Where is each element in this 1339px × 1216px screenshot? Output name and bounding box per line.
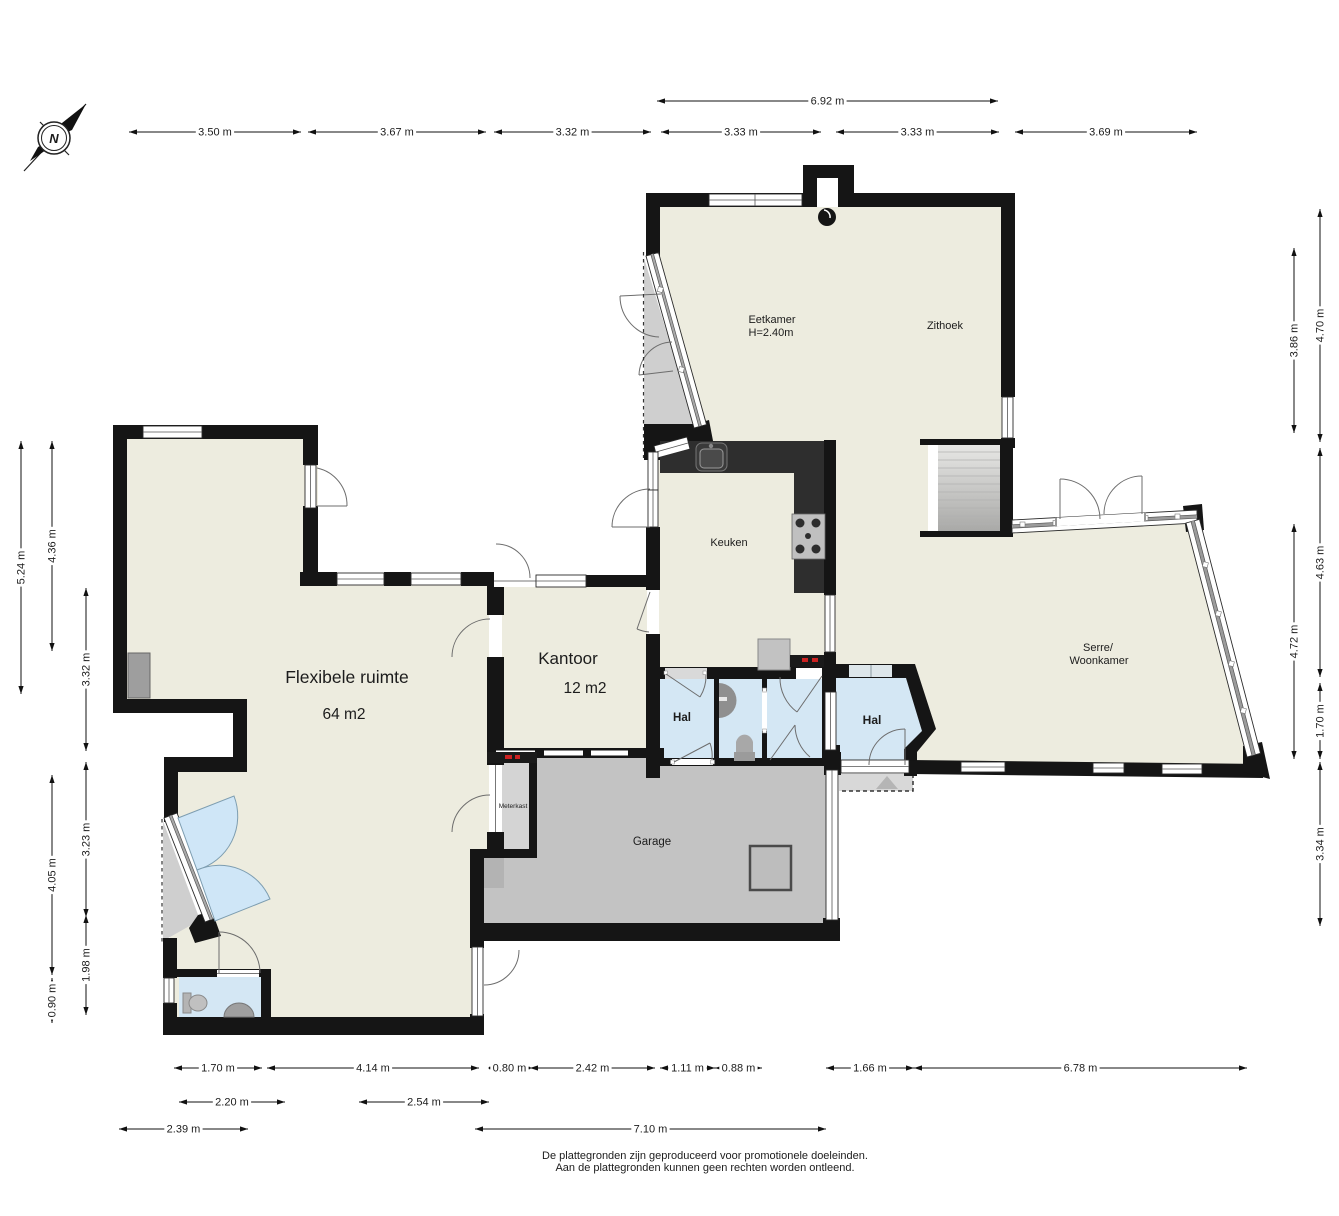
svg-text:Hal: Hal [863, 713, 882, 727]
svg-text:6.92 m: 6.92 m [811, 96, 845, 108]
svg-text:H=2.40m: H=2.40m [749, 327, 794, 339]
svg-text:1.11 m: 1.11 m [671, 1063, 704, 1075]
svg-text:64 m2: 64 m2 [322, 706, 365, 723]
svg-text:Hal: Hal [673, 712, 691, 724]
svg-text:3.33 m: 3.33 m [724, 127, 758, 139]
svg-text:N: N [49, 131, 59, 146]
svg-text:Meterkast: Meterkast [499, 803, 528, 810]
svg-text:2.42 m: 2.42 m [576, 1063, 610, 1075]
svg-text:4.63 m: 4.63 m [1315, 546, 1327, 580]
svg-text:Kantoor: Kantoor [538, 649, 598, 668]
svg-text:4.36 m: 4.36 m [47, 529, 59, 563]
svg-text:0.90 m: 0.90 m [47, 984, 59, 1018]
svg-text:4.14 m: 4.14 m [356, 1063, 390, 1075]
svg-text:1.98 m: 1.98 m [81, 948, 93, 982]
svg-text:Eetkamer: Eetkamer [748, 314, 795, 326]
svg-text:Woonkamer: Woonkamer [1069, 655, 1128, 667]
svg-text:2.20 m: 2.20 m [215, 1097, 249, 1109]
svg-text:1.70 m: 1.70 m [1315, 704, 1327, 738]
svg-text:3.32 m: 3.32 m [556, 127, 590, 139]
svg-text:3.34 m: 3.34 m [1315, 827, 1327, 861]
svg-text:Aan de plattegronden kunnen ge: Aan de plattegronden kunnen geen rechten… [555, 1162, 854, 1174]
svg-text:2.39 m: 2.39 m [167, 1124, 201, 1136]
svg-text:0.88 m: 0.88 m [722, 1063, 756, 1075]
svg-text:3.32 m: 3.32 m [81, 653, 93, 687]
svg-text:3.33 m: 3.33 m [901, 127, 935, 139]
svg-text:3.86 m: 3.86 m [1289, 324, 1301, 358]
svg-text:12 m2: 12 m2 [563, 680, 606, 697]
svg-text:5.24 m: 5.24 m [16, 551, 28, 585]
svg-text:4.05 m: 4.05 m [47, 858, 59, 892]
svg-text:De plattegronden zijn geproduc: De plattegronden zijn geproduceerd voor … [542, 1150, 868, 1162]
svg-text:Flexibele ruimte: Flexibele ruimte [285, 667, 409, 687]
svg-text:7.10 m: 7.10 m [634, 1124, 668, 1136]
svg-text:Garage: Garage [633, 836, 671, 848]
svg-text:3.69 m: 3.69 m [1089, 127, 1123, 139]
svg-text:Serre/: Serre/ [1083, 642, 1114, 654]
svg-text:Zithoek: Zithoek [927, 320, 964, 332]
svg-text:4.70 m: 4.70 m [1315, 309, 1327, 343]
svg-text:Keuken: Keuken [710, 537, 747, 549]
svg-text:3.67 m: 3.67 m [380, 127, 414, 139]
svg-text:1.70 m: 1.70 m [201, 1063, 235, 1075]
svg-text:1.66 m: 1.66 m [853, 1063, 887, 1075]
svg-text:3.50 m: 3.50 m [198, 127, 232, 139]
svg-text:3.23 m: 3.23 m [81, 823, 93, 857]
svg-text:4.72 m: 4.72 m [1289, 625, 1301, 659]
svg-text:0.80 m: 0.80 m [493, 1063, 527, 1075]
svg-text:2.54 m: 2.54 m [407, 1097, 441, 1109]
svg-text:6.78 m: 6.78 m [1064, 1063, 1098, 1075]
